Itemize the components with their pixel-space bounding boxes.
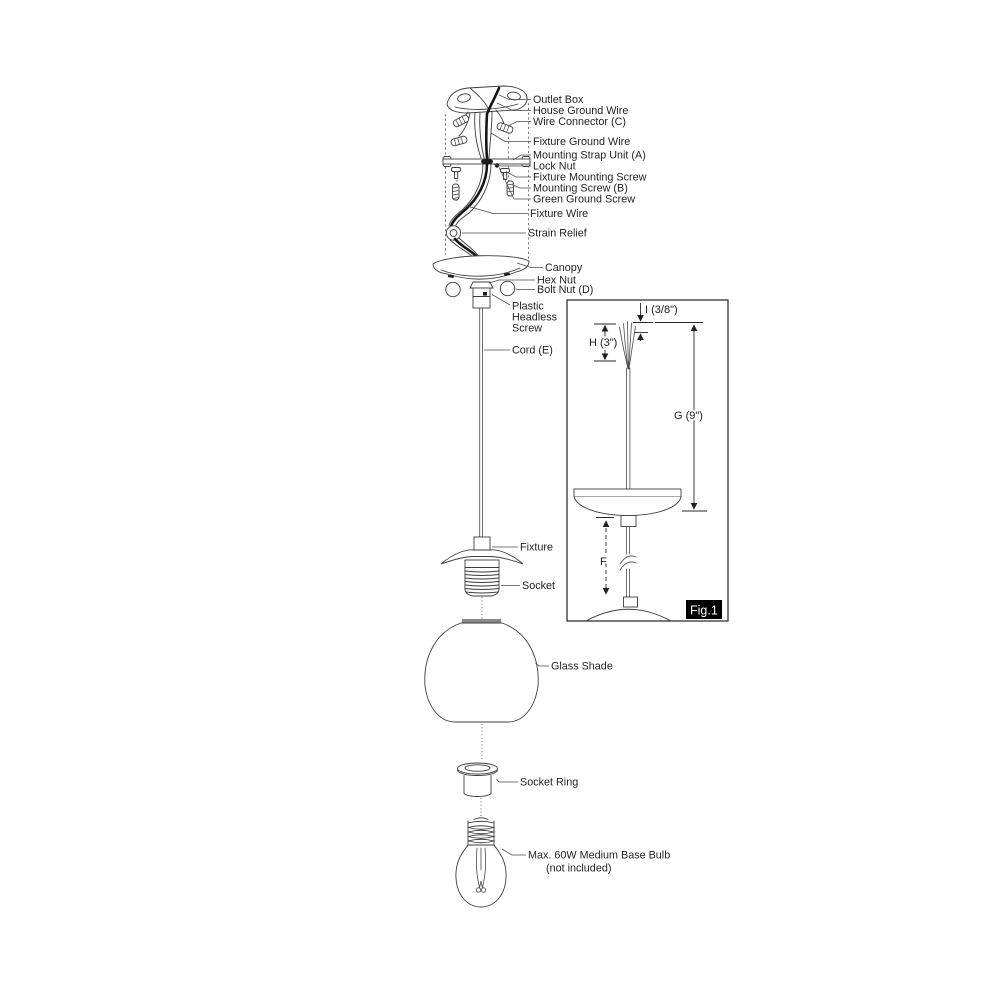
leader-glass-shade xyxy=(536,663,550,666)
fixture-ground-wire-label: Fixture Ground Wire xyxy=(533,136,630,148)
wire-connectors xyxy=(450,114,513,146)
leader-fixture-ground-wire xyxy=(491,133,531,142)
leader-socket-ring xyxy=(497,779,519,782)
strain-relief-drawing xyxy=(446,226,479,258)
figure1-caption-text: Fig.1 xyxy=(690,604,718,618)
green-ground-screw-label: Green Ground Screw xyxy=(533,194,635,206)
leader-wire-connector xyxy=(508,122,531,127)
dim-f-label: F xyxy=(600,556,607,568)
figure1-inset: I (3/8") H (3") G (9") F Fig.1 xyxy=(567,300,728,621)
dim-h-label: H (3") xyxy=(589,337,617,349)
fixture-wire-label: Fixture Wire xyxy=(530,208,588,220)
bolt-nut-right xyxy=(500,281,514,295)
diagram-canvas: Outlet Box House Ground Wire Wire Connec… xyxy=(0,0,1000,1000)
fixture-drawing xyxy=(441,537,523,568)
cord-drawing xyxy=(480,308,483,537)
socket-drawing xyxy=(465,568,499,597)
dim-i-label: I (3/8") xyxy=(645,304,678,316)
bolt-nut-label: Bolt Nut (D) xyxy=(537,284,593,296)
outlet-box-drawing xyxy=(447,86,527,114)
plastic-headless-screw-label-3: Screw xyxy=(512,323,542,335)
fixture-ground-wire-drawing xyxy=(486,114,487,158)
leader-fixture-wire xyxy=(467,206,528,214)
fixture-label: Fixture xyxy=(520,542,553,554)
figure1-caption: Fig.1 xyxy=(686,600,722,619)
leader-bolt-nut xyxy=(516,289,536,290)
glass-shade-label: Glass Shade xyxy=(551,661,613,673)
long-screw-right xyxy=(507,181,514,196)
cord-label: Cord (E) xyxy=(512,345,553,357)
long-screw-left xyxy=(453,184,460,200)
bolt-nut-left xyxy=(446,282,460,296)
socket-label: Socket xyxy=(522,580,555,592)
leader-fixture-mounting-screw xyxy=(506,172,531,178)
bulb-label-1: Max. 60W Medium Base Bulb xyxy=(528,850,670,862)
dim-g-label: G (9") xyxy=(674,410,703,422)
glass-shade-drawing xyxy=(425,619,538,722)
socket-ring-label: Socket Ring xyxy=(520,777,578,789)
socket-ring-drawing xyxy=(458,763,498,797)
wire-connector-label: Wire Connector (C) xyxy=(533,116,626,128)
bulb-drawing xyxy=(456,818,506,907)
strain-relief-label: Strain Relief xyxy=(528,228,588,240)
bulb-label-2: (not included) xyxy=(546,863,611,875)
leader-bulb xyxy=(502,849,526,855)
canopy-label: Canopy xyxy=(545,262,583,274)
plastic-headless-screw-drawing xyxy=(483,292,487,296)
canopy-stem xyxy=(473,288,490,308)
pendant-light-assembly-diagram: Outlet Box House Ground Wire Wire Connec… xyxy=(0,0,1000,1000)
